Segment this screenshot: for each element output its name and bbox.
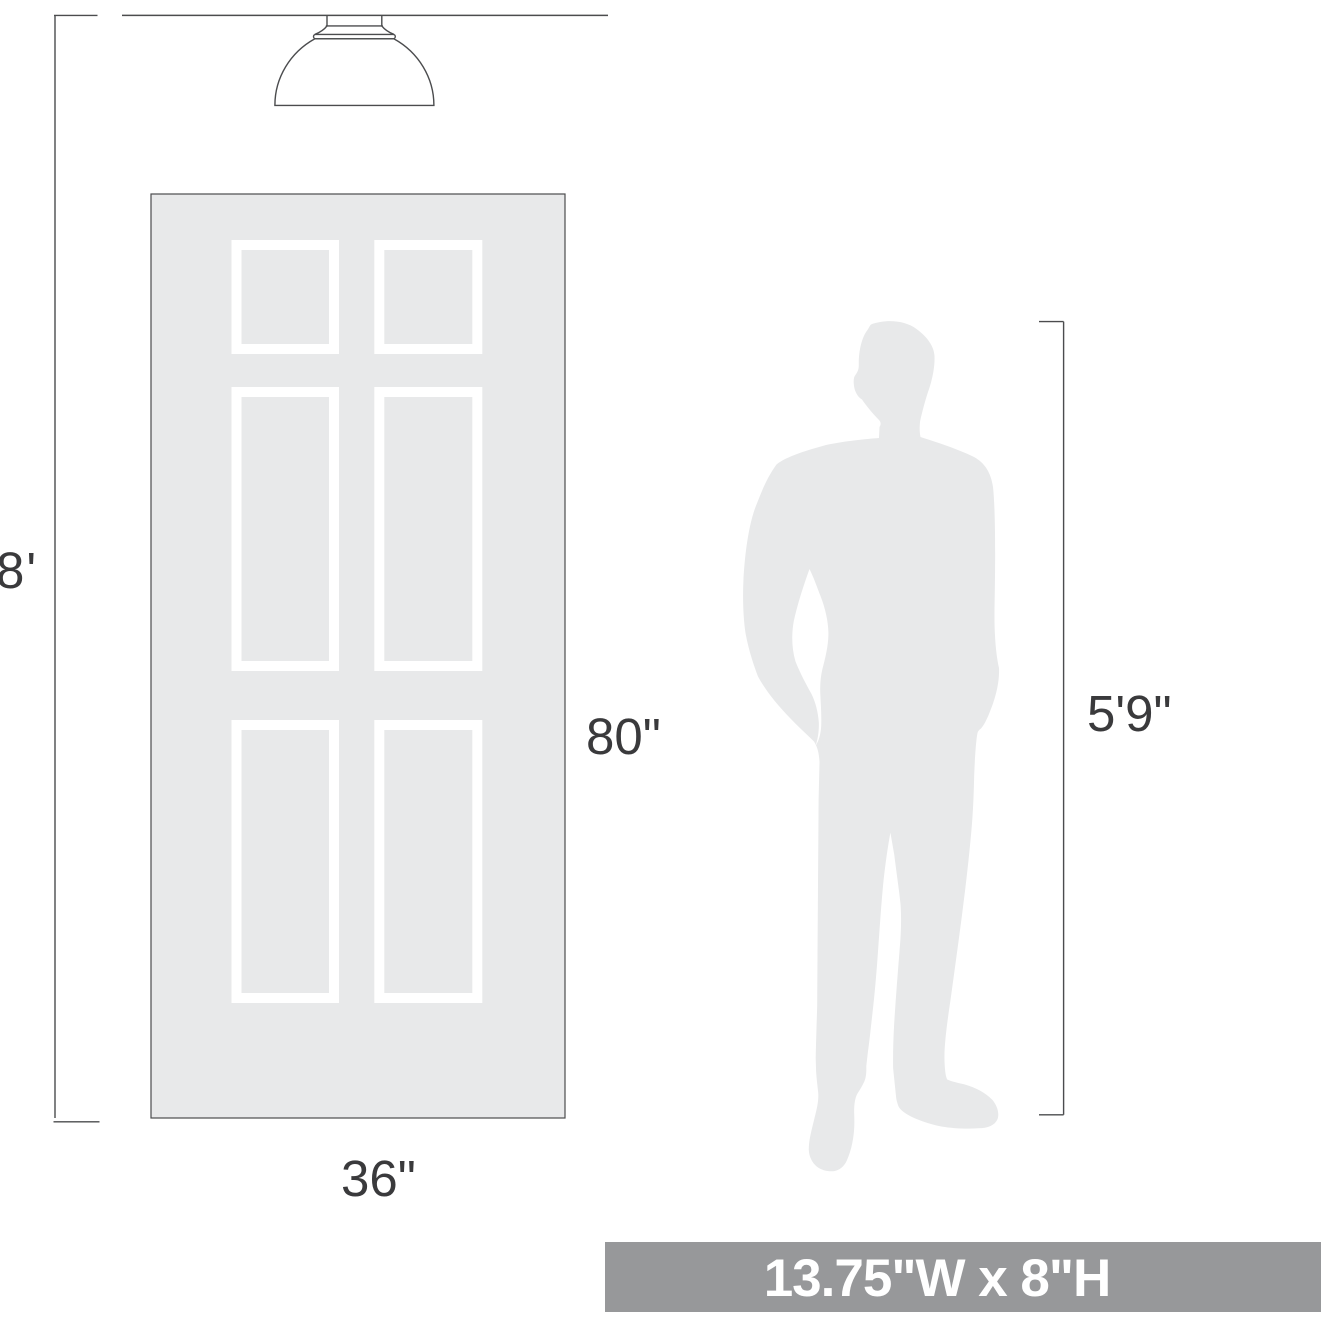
- svg-text:80": 80": [586, 708, 661, 765]
- svg-text:5'9": 5'9": [1087, 685, 1172, 742]
- svg-text:13.75"W x 8"H: 13.75"W x 8"H: [764, 1249, 1111, 1308]
- svg-text:36": 36": [341, 1150, 416, 1207]
- svg-text:8': 8': [0, 542, 38, 599]
